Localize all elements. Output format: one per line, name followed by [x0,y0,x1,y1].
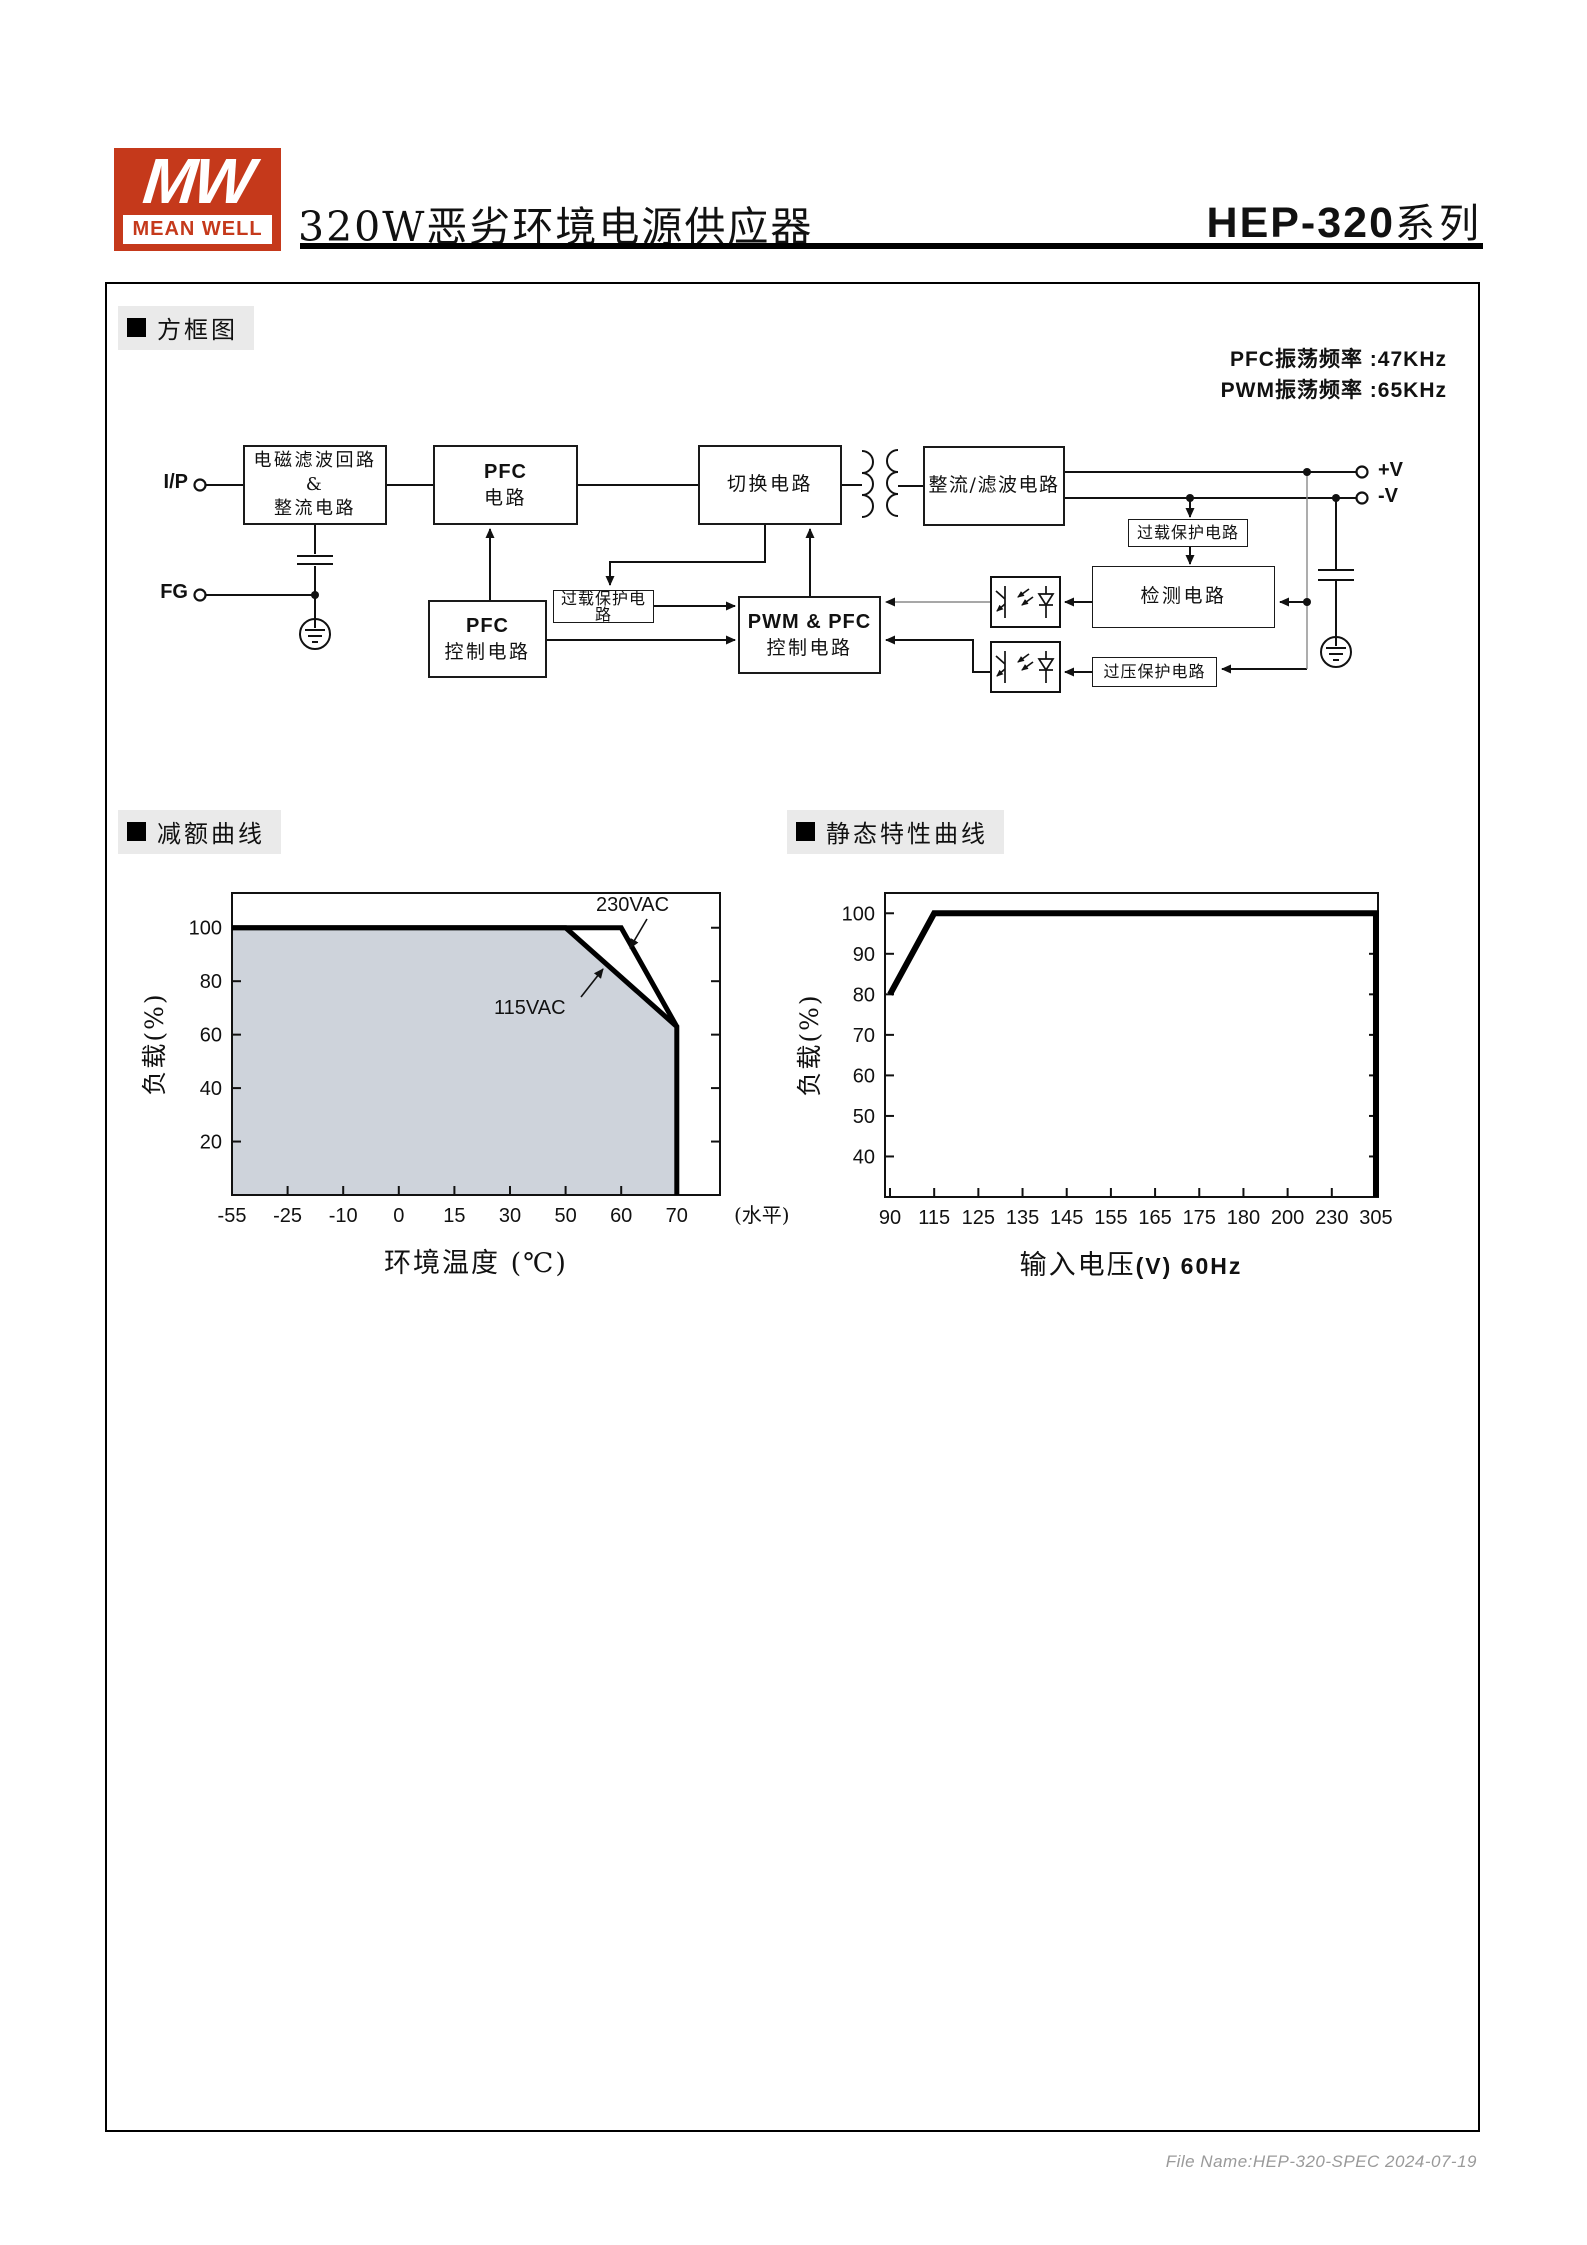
vplus-terminal-label: +V [1378,459,1403,482]
box-label-line: 检测电路 [1140,584,1226,609]
meanwell-nameplate: MEAN WELL [123,215,272,244]
pwm-pfc-control-box: PWM & PFC 控制电路 [738,596,881,674]
series-code: HEP-320 [1207,199,1395,247]
section-bullet-icon [796,822,815,841]
section-title: 静态特性曲线 [826,814,988,849]
section-block-diagram: 方框图 [118,306,254,350]
input-terminal-label: I/P [130,471,188,494]
pwm-frequency: PWM振荡频率 :65KHz [1221,375,1447,406]
box-label-line: 整流电路 [274,497,356,521]
file-name-footer: File Name:HEP-320-SPEC 2024-07-19 [1166,2152,1477,2172]
box-label-line: PWM & PFC [748,609,871,635]
header-rule [300,243,1483,249]
box-label-line: 整流/滤波电路 [929,473,1060,498]
content-frame [105,282,1480,2132]
detection-circuit-box: 检测电路 [1092,566,1275,628]
mw-logo-icon: MW [110,144,285,218]
box-label-line: 切换电路 [727,472,813,497]
box-label-line: PFC [466,613,509,639]
emi-filter-rectifier-box: 电磁滤波回路 & 整流电路 [243,445,387,525]
switching-circuit-box: 切换电路 [698,445,842,525]
pfc-frequency: PFC振荡频率 :47KHz [1221,344,1447,375]
box-label-line: 过载保护电路 [1137,525,1239,541]
box-label-line: 过压保护电路 [1103,664,1205,680]
overvoltage-protection-box: 过压保护电路 [1092,657,1217,687]
fg-terminal-label: FG [130,581,188,604]
section-title: 方框图 [157,310,238,345]
datasheet-page: MW MEAN WELL 320W恶劣环境电源供应器 HEP-320系列 方框图… [0,0,1587,2245]
box-label-line: 过载保护电路 [554,591,653,623]
section-derating-curve: 减额曲线 [118,810,281,854]
series-title: HEP-320系列 [1207,191,1483,249]
box-label-line: & [306,473,325,497]
box-label-line: 控制电路 [766,636,852,661]
section-static-curve: 静态特性曲线 [787,810,1004,854]
box-label-line: 电路 [484,486,527,511]
section-bullet-icon [127,318,146,337]
vminus-terminal-label: -V [1378,485,1398,508]
oscillation-frequency-note: PFC振荡频率 :47KHz PWM振荡频率 :65KHz [1221,344,1447,406]
section-bullet-icon [127,822,146,841]
series-suffix: 系列 [1395,201,1483,247]
box-label-line: PFC [484,459,527,485]
rectifier-filter-box: 整流/滤波电路 [923,446,1065,526]
meanwell-logo: MW MEAN WELL [114,148,281,251]
section-title: 减额曲线 [157,814,265,849]
pfc-circuit-box: PFC 电路 [433,445,578,525]
overload-protection-box-1: 过载保护电路 [553,590,654,623]
pfc-control-box: PFC 控制电路 [428,600,547,678]
overload-protection-box-2: 过载保护电路 [1128,519,1248,547]
box-label-line: 电磁滤波回路 [254,449,377,473]
box-label-line: 控制电路 [444,640,530,665]
